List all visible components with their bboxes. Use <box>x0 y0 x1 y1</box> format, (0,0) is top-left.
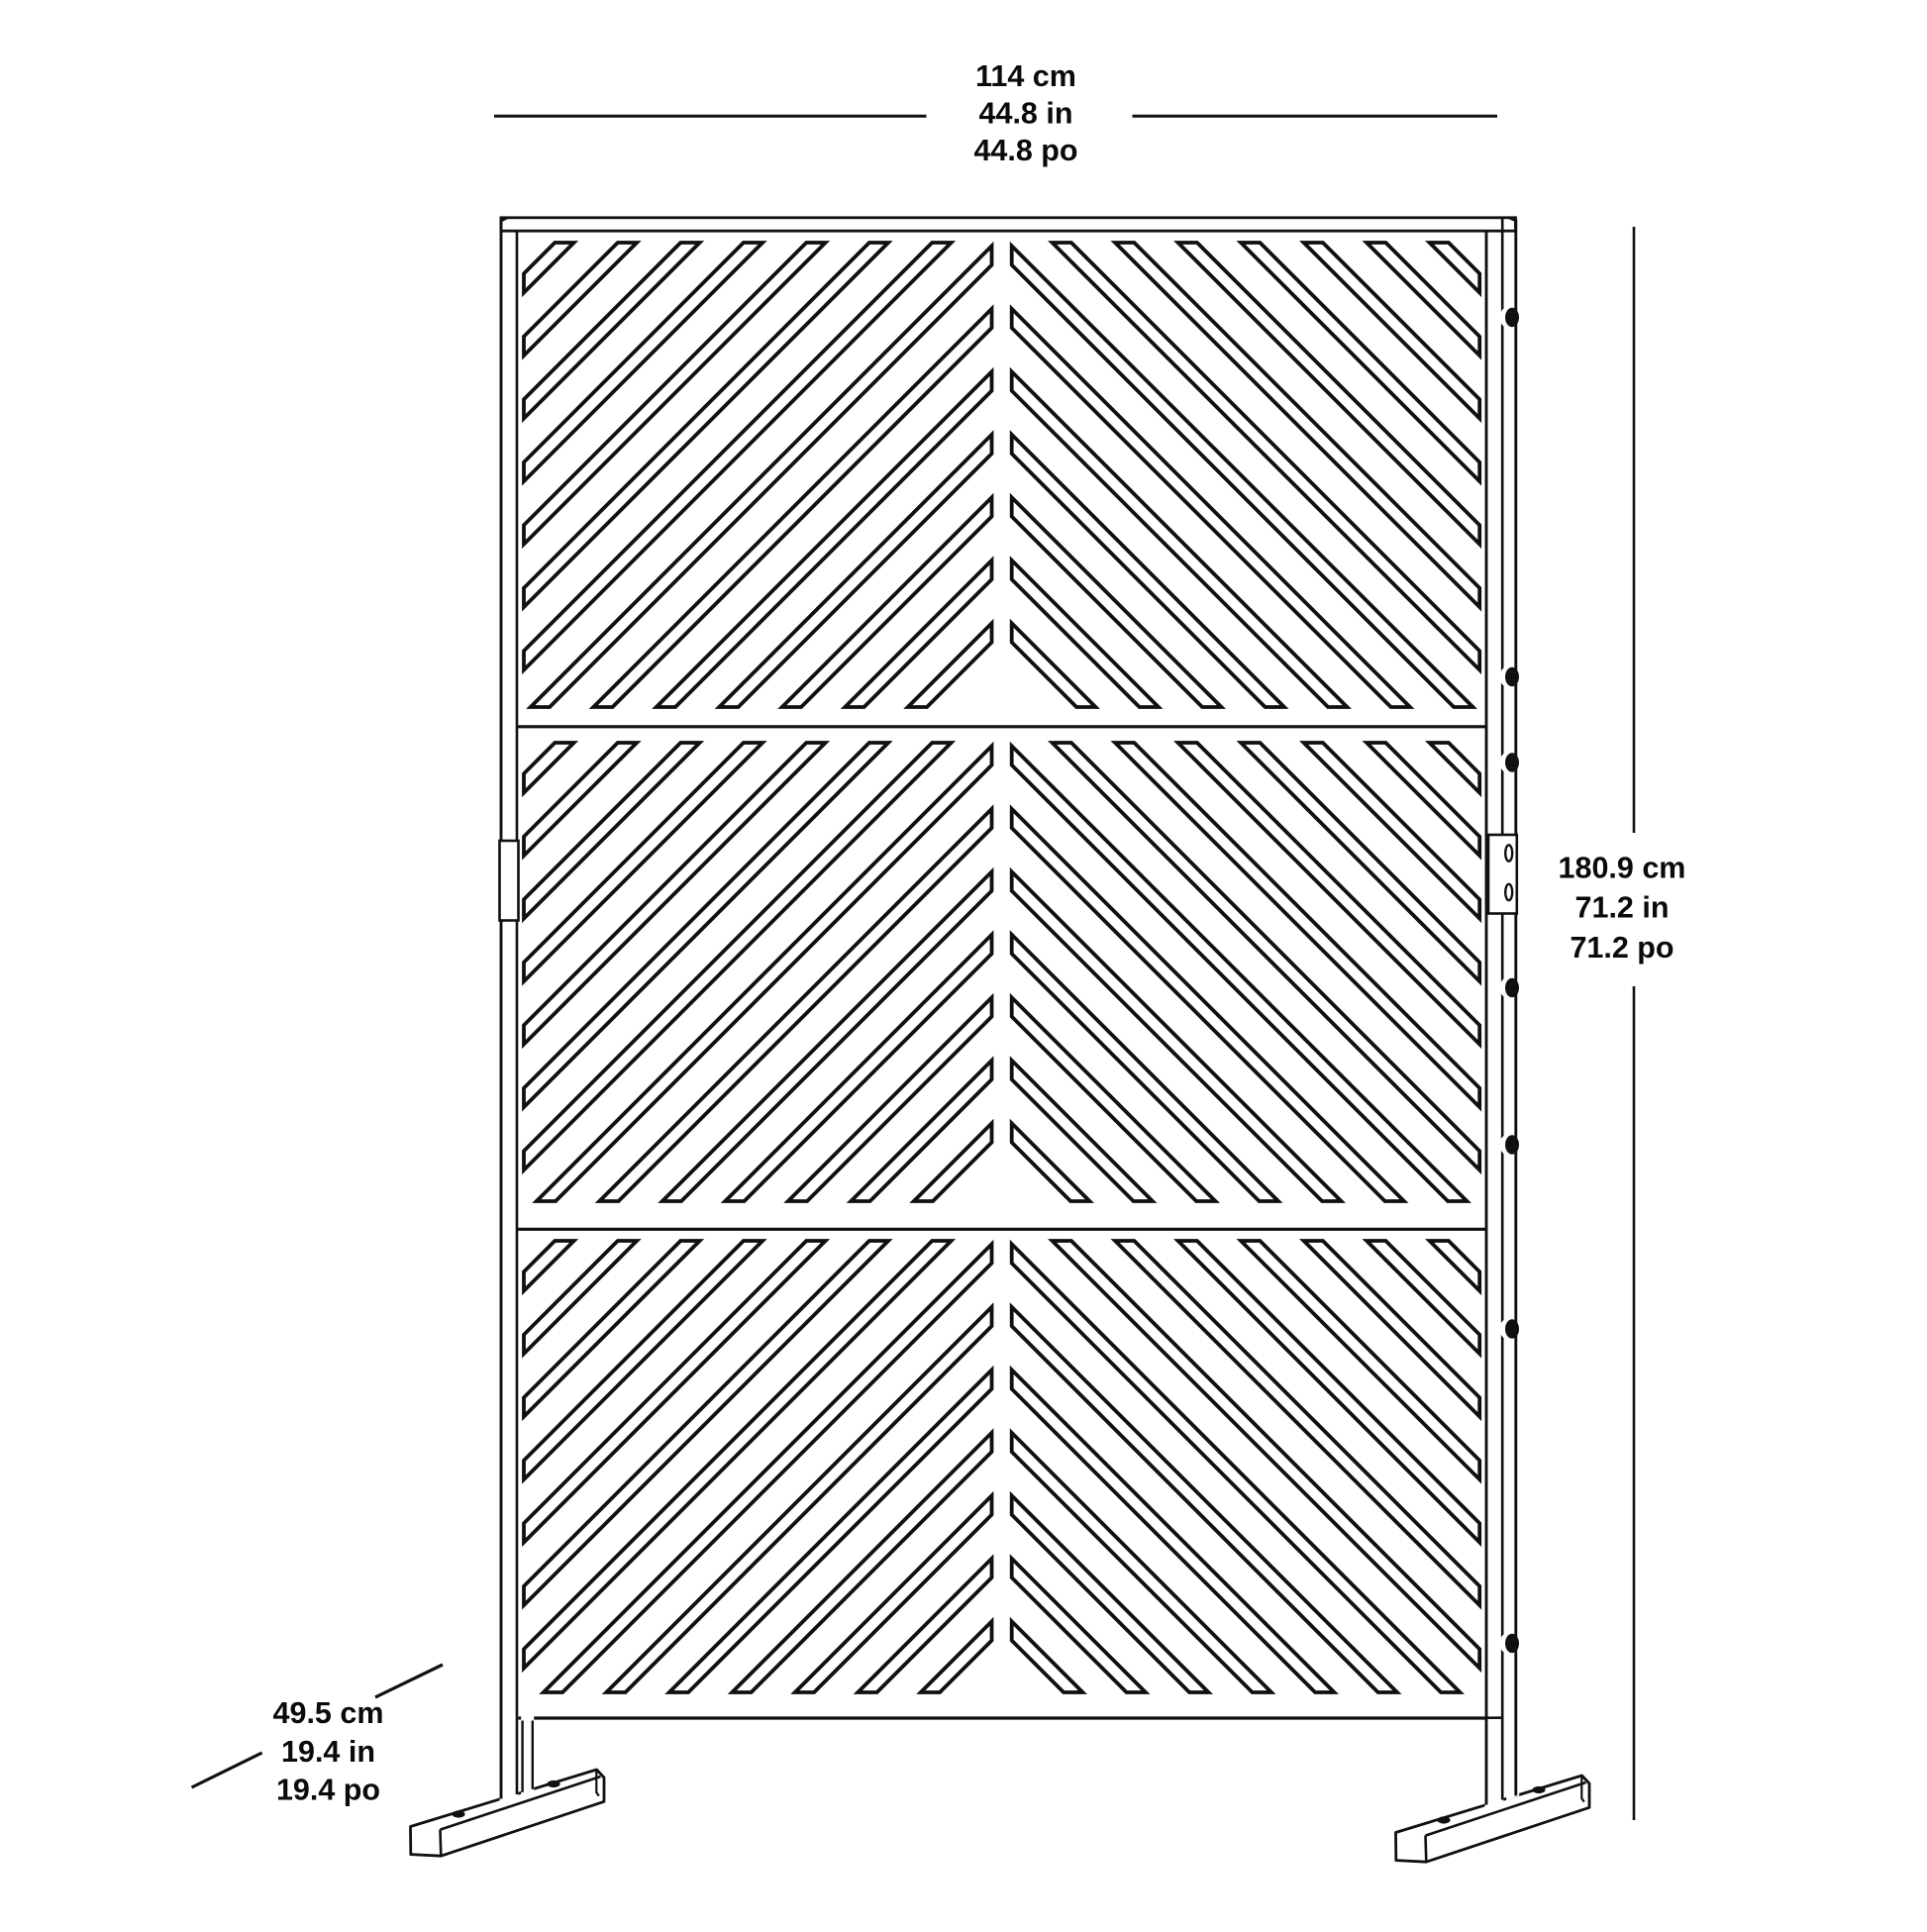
svg-text:44.8 in: 44.8 in <box>979 97 1073 131</box>
svg-text:19.4 po: 19.4 po <box>276 1774 380 1807</box>
svg-text:114 cm: 114 cm <box>975 59 1076 93</box>
svg-text:71.2 in: 71.2 in <box>1575 891 1670 925</box>
svg-text:19.4 in: 19.4 in <box>281 1735 375 1769</box>
svg-text:71.2 po: 71.2 po <box>1570 931 1673 965</box>
svg-text:180.9 cm: 180.9 cm <box>1559 851 1686 884</box>
svg-text:49.5 cm: 49.5 cm <box>273 1696 384 1730</box>
svg-text:44.8 po: 44.8 po <box>973 134 1077 167</box>
